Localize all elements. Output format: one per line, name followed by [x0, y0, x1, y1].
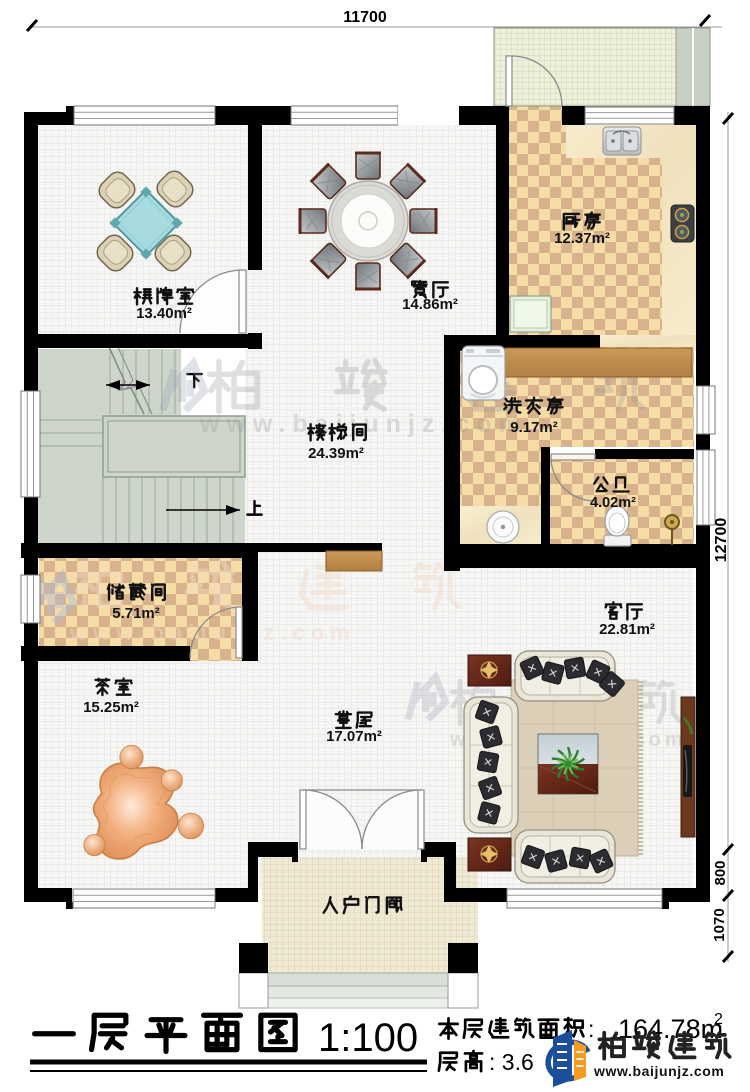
svg-text:1:100: 1:100 [318, 1016, 418, 1060]
svg-text:2: 2 [714, 1011, 723, 1028]
svg-text:13.40m²: 13.40m² [136, 305, 192, 322]
svg-text:15.25m²: 15.25m² [83, 699, 139, 716]
svg-text:4.02m²: 4.02m² [590, 495, 636, 511]
svg-text:17.07m²: 17.07m² [326, 728, 382, 745]
svg-text::: : [588, 1016, 594, 1042]
svg-text:11700: 11700 [343, 9, 387, 26]
svg-text:800: 800 [712, 860, 729, 885]
svg-text:1070: 1070 [711, 908, 728, 941]
svg-text:12700: 12700 [713, 518, 730, 563]
svg-text:: 3.6: : 3.6 [489, 1049, 534, 1075]
svg-text:24.39m²: 24.39m² [308, 445, 364, 462]
svg-text:14.86m²: 14.86m² [402, 296, 458, 313]
svg-text:12.37m²: 12.37m² [554, 230, 610, 247]
svg-text:www.baijunjz.com: www.baijunjz.com [593, 1063, 724, 1079]
svg-text:9.17m²: 9.17m² [510, 419, 558, 436]
svg-text:22.81m²: 22.81m² [599, 621, 655, 638]
svg-text:www.baijunjz.com: www.baijunjz.com [69, 620, 356, 645]
svg-text:5.71m²: 5.71m² [112, 605, 160, 622]
